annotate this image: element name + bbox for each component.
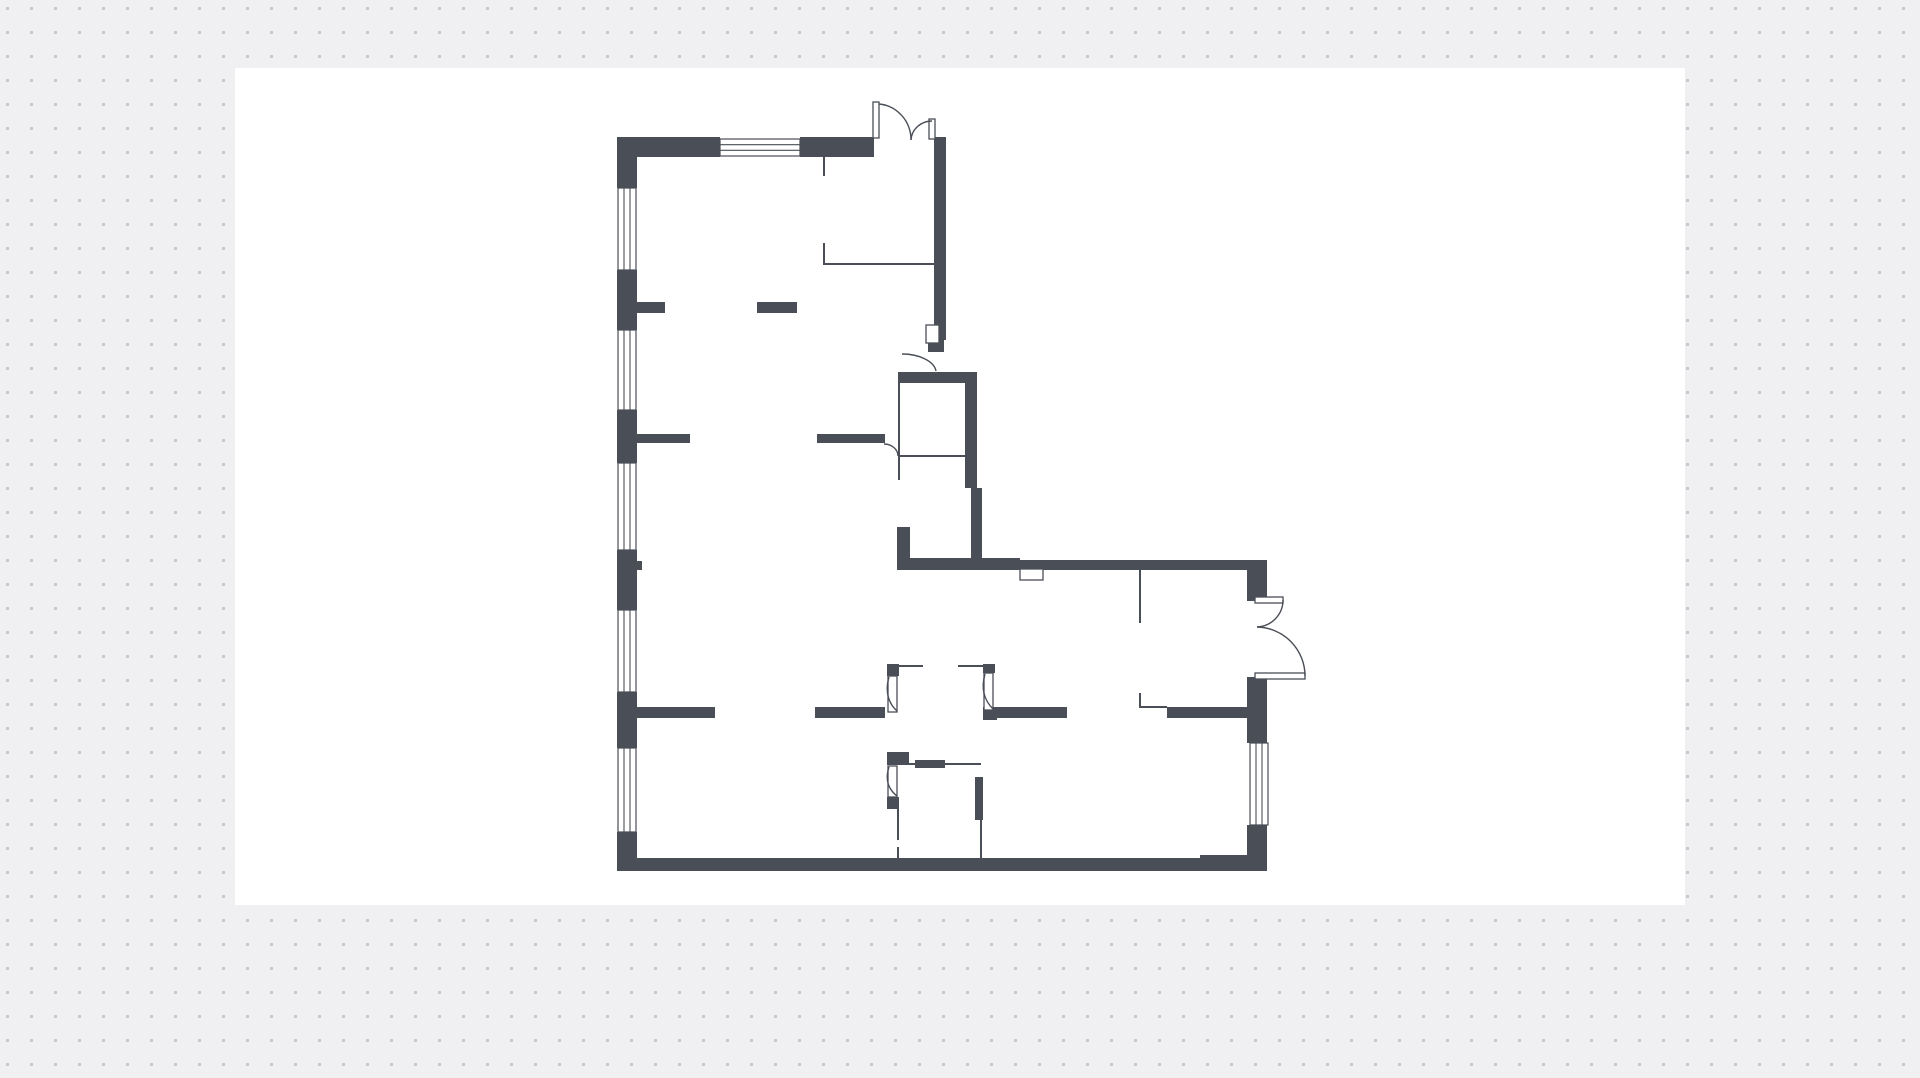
wall-segment	[617, 410, 637, 463]
plan-paper	[235, 68, 1685, 905]
wall-niche	[926, 325, 939, 343]
wall-segment	[637, 858, 1200, 871]
wall-segment	[1247, 560, 1267, 601]
wall-segment	[617, 550, 637, 610]
floor-plan-svg	[0, 0, 1920, 1078]
wall-segment	[800, 137, 874, 157]
wall-segment	[934, 137, 946, 325]
wall-segment	[975, 777, 983, 820]
wall-segment	[983, 664, 995, 673]
screenshot-stage	[0, 0, 1920, 1078]
wall-segment	[965, 383, 977, 455]
wall-segment	[1167, 707, 1250, 718]
window-frame	[1250, 743, 1268, 825]
wall-segment	[897, 560, 1247, 570]
window-frame	[618, 748, 636, 832]
wall-segment	[757, 302, 797, 313]
window-frame	[720, 139, 800, 156]
wall-segment	[898, 372, 977, 383]
wall-segment	[971, 488, 982, 563]
window-frame	[618, 463, 636, 550]
window-frame	[618, 188, 636, 270]
wall-segment	[617, 832, 637, 871]
wall-segment	[617, 270, 637, 330]
wall-segment	[997, 707, 1067, 718]
wall-segment	[617, 137, 720, 157]
wall-segment	[617, 692, 637, 748]
wall-segment	[815, 707, 885, 718]
wall-segment	[965, 455, 977, 488]
door-leaf	[1255, 673, 1305, 679]
wall-niche	[1020, 569, 1043, 580]
wall-segment	[637, 434, 690, 443]
wall-segment	[637, 561, 642, 570]
window-frame	[618, 610, 636, 692]
wall-segment	[887, 664, 899, 676]
wall-segment	[637, 302, 665, 313]
wall-segment	[1200, 855, 1267, 871]
wall-segment	[817, 434, 885, 443]
wall-segment	[887, 797, 899, 809]
door-leaf	[929, 119, 935, 139]
window-frame	[618, 330, 636, 410]
door-leaf	[873, 102, 879, 138]
door-leaf	[1255, 597, 1283, 603]
wall-segment	[637, 707, 715, 718]
